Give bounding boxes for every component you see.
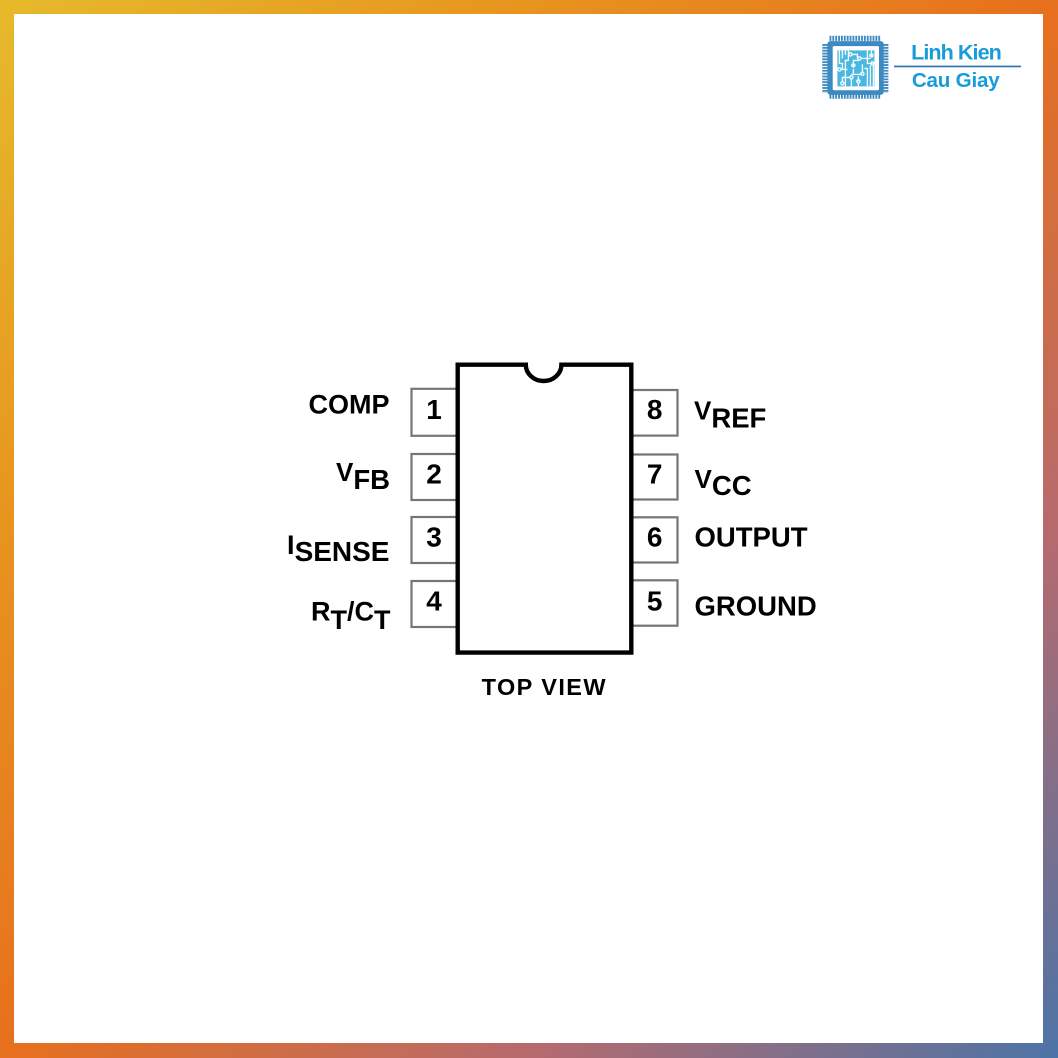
svg-text:Linh Kien: Linh Kien: [911, 39, 1001, 64]
svg-text:VCC: VCC: [695, 464, 752, 501]
svg-text:RT/CT: RT/CT: [311, 597, 391, 636]
svg-text:VFB: VFB: [336, 457, 390, 495]
svg-text:4: 4: [426, 586, 442, 617]
svg-text:8: 8: [647, 394, 663, 425]
svg-text:COMP: COMP: [309, 390, 390, 420]
svg-text:GROUND: GROUND: [695, 590, 817, 621]
svg-text:OUTPUT: OUTPUT: [695, 521, 808, 552]
svg-text:ISENSE: ISENSE: [287, 530, 389, 567]
svg-text:7: 7: [647, 459, 663, 490]
svg-text:Cau Giay: Cau Giay: [912, 69, 1000, 92]
svg-text:3: 3: [426, 522, 442, 553]
svg-text:VREF: VREF: [694, 396, 766, 434]
svg-text:1: 1: [426, 394, 442, 425]
svg-text:TOP VIEW: TOP VIEW: [482, 674, 607, 700]
svg-text:6: 6: [647, 522, 663, 553]
svg-text:2: 2: [426, 459, 442, 490]
svg-text:5: 5: [647, 586, 663, 617]
